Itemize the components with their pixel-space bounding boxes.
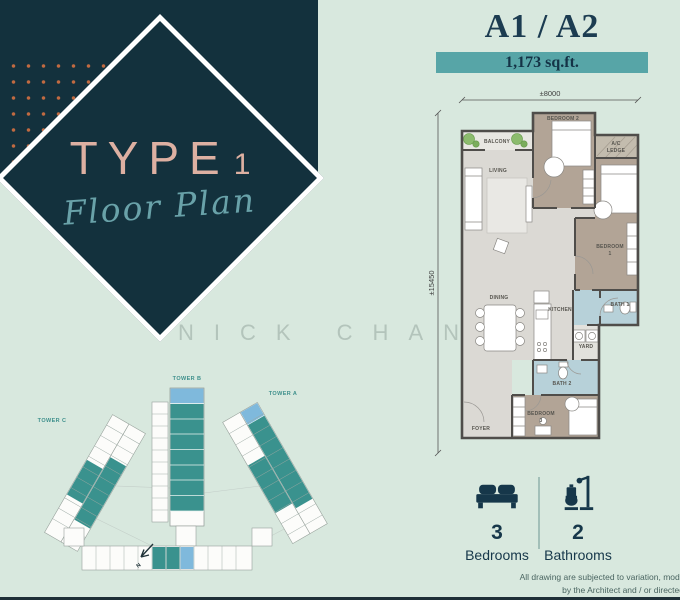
podium-row [64, 528, 272, 570]
disclaimer-line1: All drawing are subjected to variation, … [520, 571, 680, 584]
bedrooms-stat: 3 Bedrooms [453, 481, 541, 563]
area-banner: 1,173 sq.ft. [436, 52, 648, 73]
bathrooms-count: 2 [540, 521, 616, 545]
room-label-bedroom1-1: BEDROOM [596, 244, 624, 250]
room-label-ac-2: LEDGE [607, 148, 626, 154]
tower-c-label: TOWER C [38, 418, 67, 424]
tower-c-block [45, 415, 146, 552]
bathroom-icon [559, 471, 597, 513]
brand-diamond-content: TYPE 1 Floor Plan [49, 67, 271, 289]
unit-title: A1 / A2 [435, 8, 649, 46]
brochure-page: TYPE 1 Floor Plan A1 / A2 1,173 sq.ft. ±… [0, 0, 680, 600]
room-label-ac-1: A/C [611, 141, 620, 147]
watermark: NICK CHAN [178, 320, 479, 346]
bed-icon [474, 481, 520, 513]
room-label-balcony: BALCONY [484, 139, 511, 145]
dimension-height: ±15450 [427, 110, 441, 456]
bedrooms-label: Bedrooms [453, 547, 541, 563]
bathrooms-label: Bathrooms [540, 547, 616, 563]
tower-a-label: TOWER A [269, 391, 297, 397]
room-label-bedroom2: BEDROOM 2 [547, 116, 579, 122]
disclaimer-line2: by the Architect and / or directed [520, 584, 680, 597]
type-word: TYPE [70, 131, 230, 185]
room-label-bedroom1-2: 1 [609, 251, 612, 257]
room-label-dining: DINING [490, 295, 509, 301]
unit-plan: BALCONY LIVING BEDROOM 2 A/C LEDGE BEDRO… [461, 113, 638, 438]
bedrooms-count: 3 [453, 521, 541, 545]
floorplan-drawing: ±8000 ±15450 [425, 85, 655, 465]
dimension-width-label: ±8000 [540, 89, 561, 98]
dimension-height-label: ±15450 [427, 271, 436, 296]
room-label-bath1: BATH 1 [611, 302, 630, 308]
bathrooms-stat: 2 Bathrooms [540, 471, 616, 563]
room-label-foyer: FOYER [472, 426, 490, 432]
type-title: TYPE 1 [70, 131, 251, 185]
siteplan-drawing: TOWER C TOWER B TOWER A N [20, 368, 340, 583]
type-number: 1 [234, 148, 251, 182]
room-label-bedroom3-2: 3 [540, 418, 543, 424]
floor-plan-script-title: Floor Plan [62, 180, 257, 232]
dimension-width: ±8000 [459, 89, 641, 103]
room-label-kitchen: KITCHEN [548, 307, 572, 313]
room-label-yard: YARD [579, 344, 594, 350]
tower-b-block [152, 388, 204, 546]
tower-a-block [223, 402, 328, 543]
tower-b-label: TOWER B [173, 376, 202, 382]
room-label-bath2: BATH 2 [553, 381, 572, 387]
room-label-bedroom3-1: BEDROOM [527, 411, 555, 417]
room-label-living: LIVING [489, 168, 507, 174]
disclaimer: All drawing are subjected to variation, … [520, 571, 680, 596]
